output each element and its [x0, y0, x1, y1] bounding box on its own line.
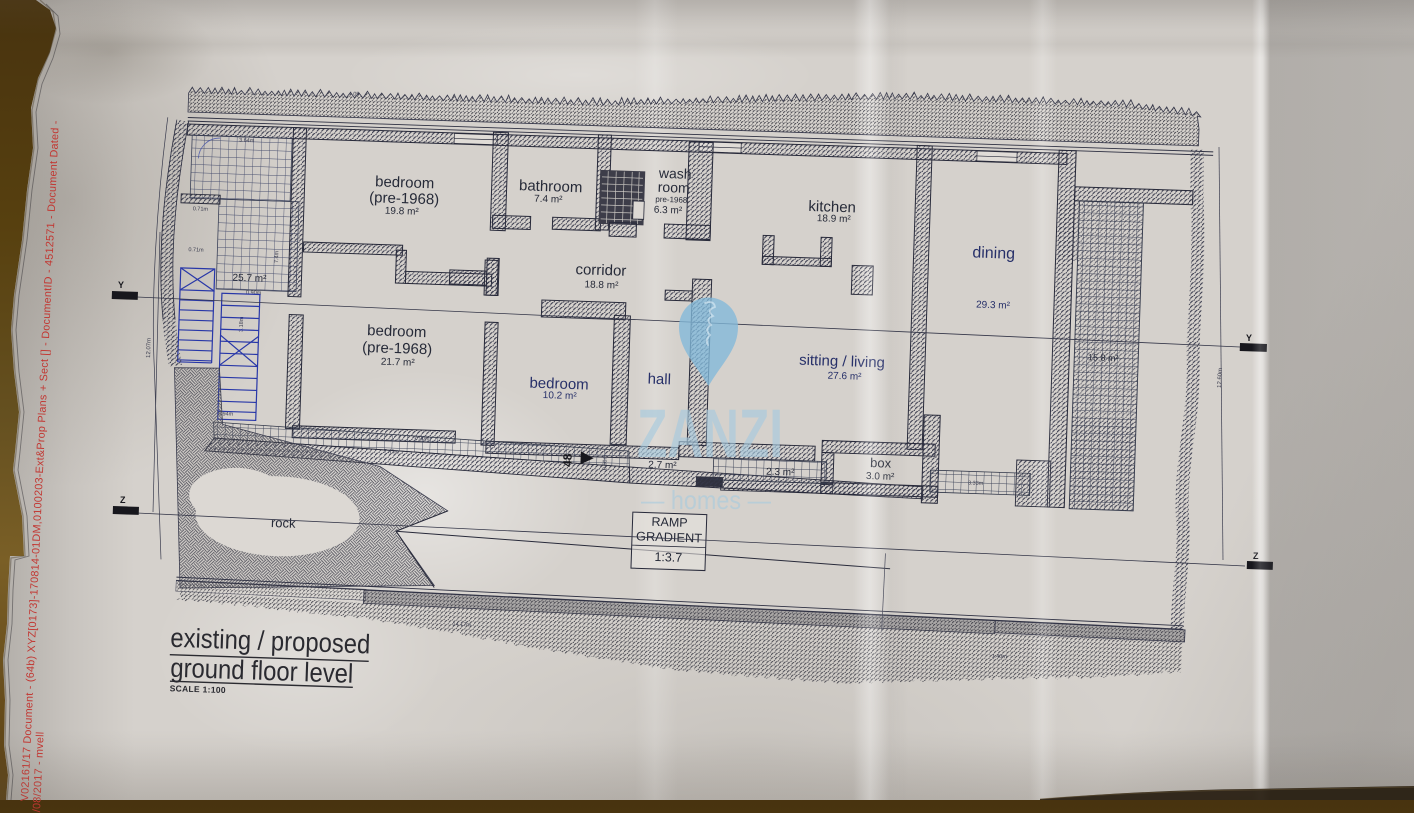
svg-text:0.71m: 0.71m: [193, 206, 209, 213]
svg-text:27.6 m²: 27.6 m²: [827, 371, 862, 383]
svg-text:1:3.7: 1:3.7: [654, 550, 682, 565]
svg-text:15.8 m²: 15.8 m²: [1088, 352, 1119, 363]
svg-text:10.2 m²: 10.2 m²: [543, 390, 578, 402]
svg-text:Z: Z: [1253, 551, 1259, 561]
svg-text:12.07m: 12.07m: [146, 338, 153, 358]
svg-text:48: 48: [560, 453, 574, 467]
svg-text:18.9 m²: 18.9 m²: [817, 213, 852, 225]
svg-text:room: room: [658, 179, 690, 196]
svg-text:ZANZI: ZANZI: [637, 395, 783, 472]
svg-text:(pre-1968): (pre-1968): [362, 339, 433, 358]
svg-text:19.8 m²: 19.8 m²: [385, 206, 420, 218]
svg-text:corridor: corridor: [575, 261, 626, 280]
svg-text:Z: Z: [120, 495, 126, 505]
svg-text:hall: hall: [647, 371, 671, 389]
svg-text:RAMP: RAMP: [651, 515, 688, 530]
svg-text:7.4m: 7.4m: [274, 250, 280, 263]
svg-text:pre-1968: pre-1968: [655, 195, 688, 205]
svg-text:7.90m: 7.90m: [414, 436, 430, 443]
svg-text:7.4 m²: 7.4 m²: [534, 194, 563, 206]
svg-text:3.0 m²: 3.0 m²: [866, 471, 895, 483]
svg-text:12.60m: 12.60m: [1217, 368, 1224, 388]
svg-text:3.33m: 3.33m: [968, 480, 984, 487]
svg-text:sitting / living: sitting / living: [799, 352, 885, 372]
svg-text:Y: Y: [1246, 333, 1252, 343]
svg-text:rock: rock: [271, 515, 297, 531]
svg-text:25.7 m²: 25.7 m²: [232, 273, 267, 285]
svg-text:4.05: 4.05: [349, 91, 360, 97]
svg-text:7.41m: 7.41m: [384, 449, 400, 456]
svg-text:1.40m: 1.40m: [991, 654, 1007, 661]
svg-text:SCALE 1:100: SCALE 1:100: [170, 683, 227, 695]
svg-text:21.7 m²: 21.7 m²: [381, 357, 416, 369]
svg-text:Y: Y: [118, 280, 124, 290]
svg-text:box: box: [870, 455, 892, 471]
svg-text:29.3 m²: 29.3 m²: [976, 300, 1011, 312]
svg-text:0.71m: 0.71m: [188, 247, 204, 254]
svg-text:14.17m: 14.17m: [452, 622, 471, 629]
svg-text:6.3 m²: 6.3 m²: [654, 205, 683, 217]
svg-text:— homes —: — homes —: [641, 485, 771, 515]
svg-text:dining: dining: [972, 244, 1015, 262]
svg-text:bedroom: bedroom: [367, 322, 427, 341]
svg-text:3.64m: 3.64m: [239, 138, 255, 145]
svg-text:18.8 m²: 18.8 m²: [584, 279, 619, 291]
